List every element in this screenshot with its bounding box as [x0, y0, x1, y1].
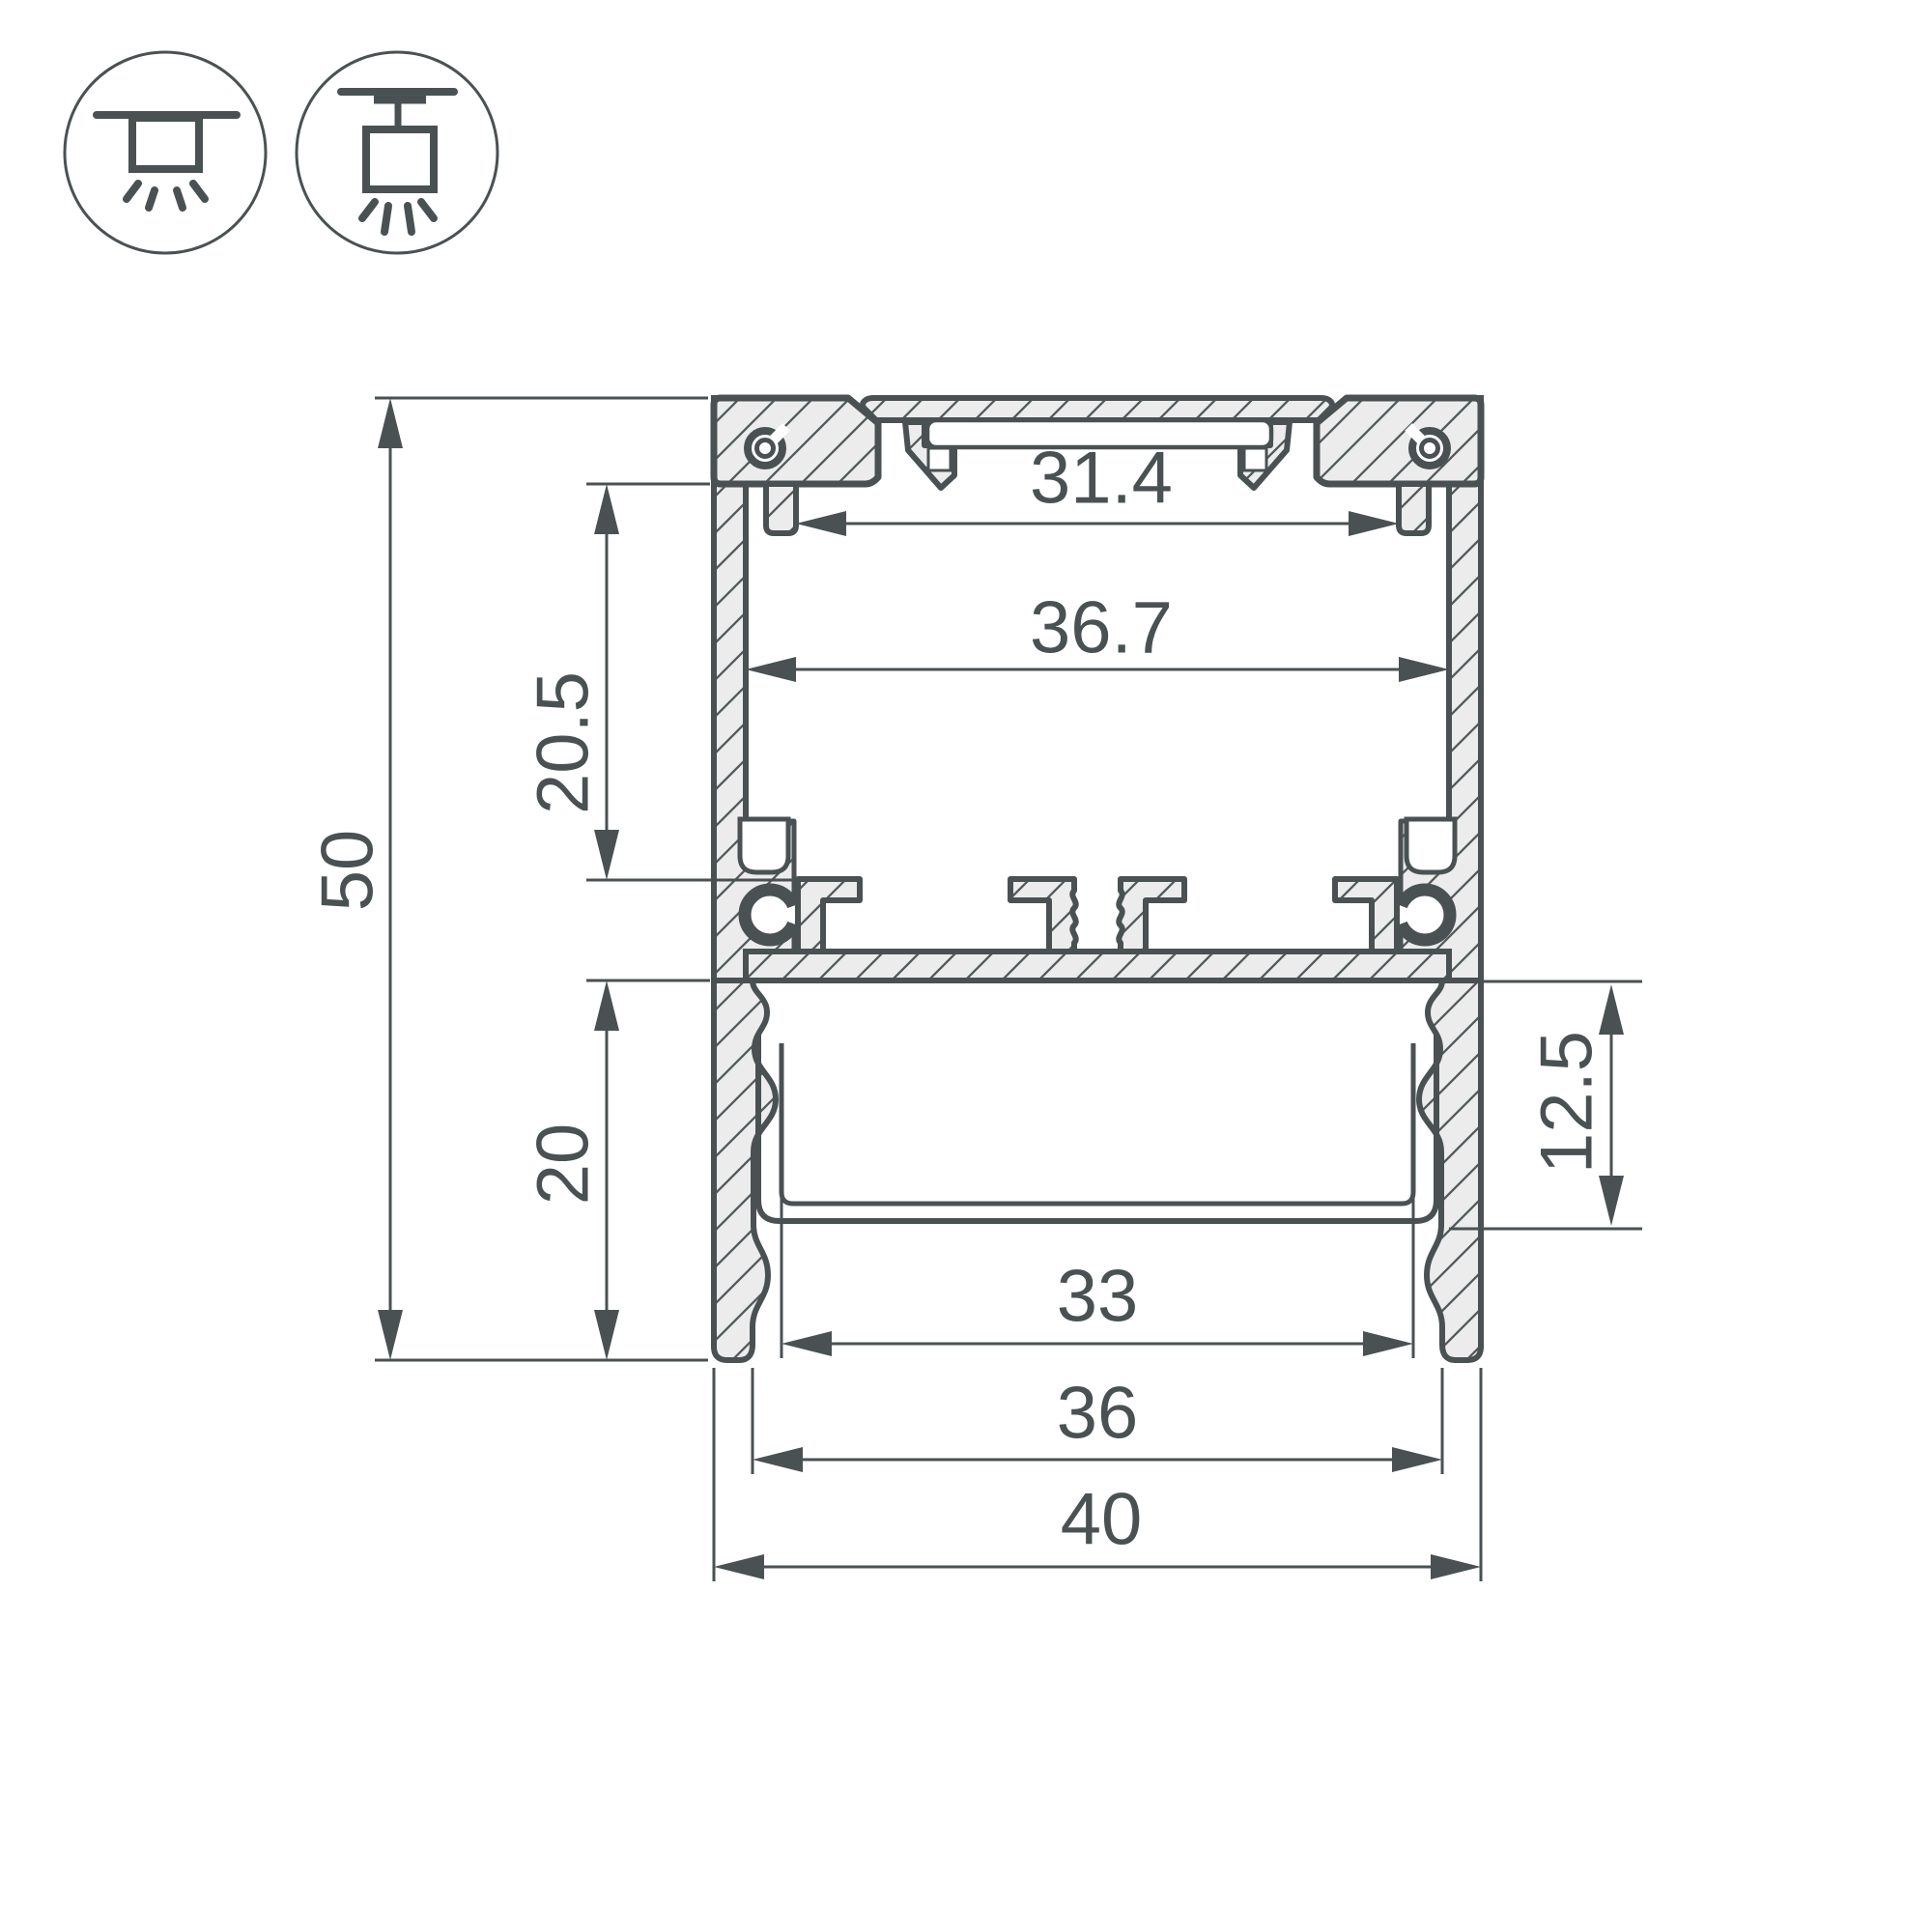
svg-text:33: 33: [1057, 1256, 1139, 1338]
svg-text:20.5: 20.5: [523, 671, 605, 814]
svg-text:31.4: 31.4: [1030, 438, 1173, 520]
svg-text:20: 20: [523, 1123, 605, 1206]
svg-text:36.7: 36.7: [1030, 587, 1173, 669]
svg-text:50: 50: [307, 830, 389, 912]
svg-text:12.5: 12.5: [1526, 1031, 1608, 1174]
svg-text:40: 40: [1061, 1479, 1143, 1561]
svg-text:36: 36: [1057, 1373, 1139, 1455]
